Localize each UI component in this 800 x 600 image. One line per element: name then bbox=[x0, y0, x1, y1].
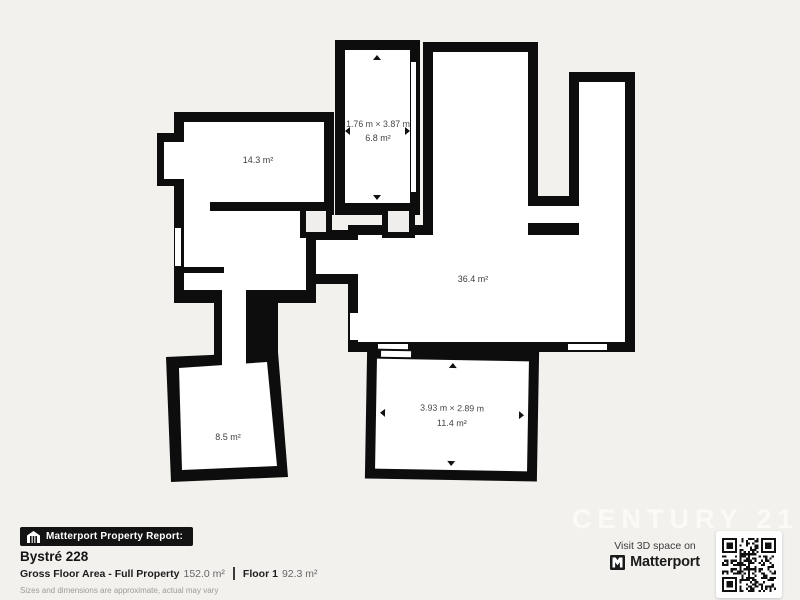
report-badge-label: Matterport Property Report: bbox=[46, 531, 183, 542]
disclaimer-text: Sizes and dimensions are approximate, ac… bbox=[20, 586, 218, 595]
room-6-8-area-label: 6.8 m² bbox=[365, 133, 391, 143]
visit-3d-text: Visit 3D space on bbox=[614, 540, 696, 552]
stats-divider bbox=[233, 567, 235, 580]
visit-3d-cta: Visit 3D space on Matterport bbox=[597, 540, 713, 570]
matterport-logo[interactable]: Matterport bbox=[610, 554, 700, 570]
room-36-4-area-label: 36.4 m² bbox=[458, 274, 489, 284]
property-name: Bystré 228 bbox=[20, 549, 88, 564]
report-badge: Matterport Property Report: bbox=[20, 527, 193, 546]
house-scan-icon bbox=[27, 531, 40, 543]
floor-label: Floor 1 bbox=[243, 568, 278, 580]
gfa-label: Gross Floor Area - Full Property bbox=[20, 568, 179, 580]
room-8-5-area-label: 8.5 m² bbox=[215, 432, 241, 442]
gfa-value: 152.0 m² bbox=[183, 568, 224, 580]
floor-area-stats: Gross Floor Area - Full Property 152.0 m… bbox=[20, 567, 318, 580]
matterport-m-icon bbox=[610, 555, 625, 570]
room-11-4-block: 3.93 m × 2.89 m 11.4 m² bbox=[365, 349, 539, 482]
qr-code-icon bbox=[722, 538, 776, 592]
room-6-8-dims-label: 1.76 m × 3.87 m bbox=[346, 119, 410, 129]
room-11-4-area-label: 11.4 m² bbox=[437, 418, 467, 429]
room-14-3-area-label: 14.3 m² bbox=[243, 155, 274, 165]
floor-value: 92.3 m² bbox=[282, 568, 318, 580]
matterport-logo-text: Matterport bbox=[630, 554, 700, 570]
qr-code-card[interactable] bbox=[716, 531, 782, 598]
room-11-4-dims-label: 3.93 m × 2.89 m bbox=[420, 402, 484, 413]
